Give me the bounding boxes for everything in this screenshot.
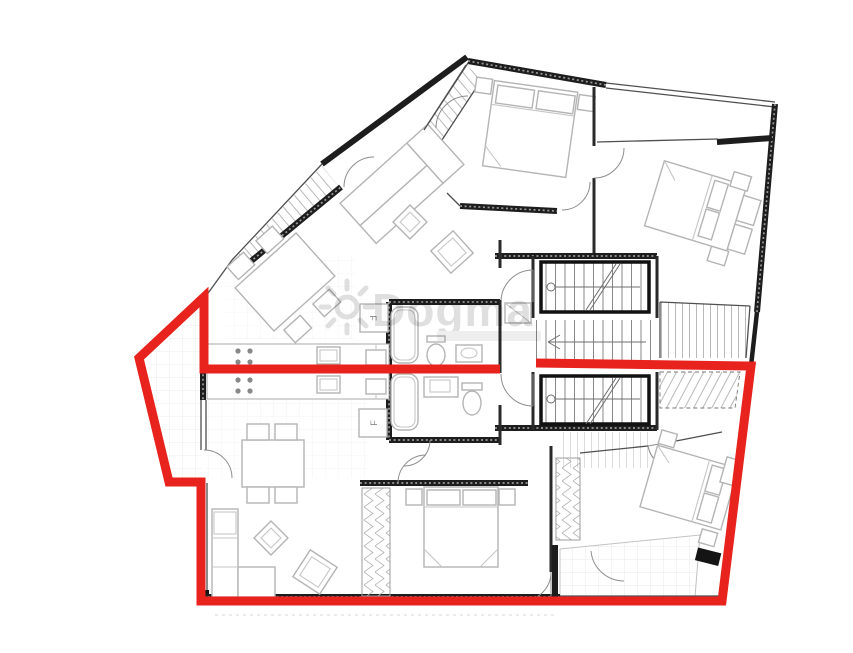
bathroom-lower bbox=[391, 374, 482, 466]
stairwell bbox=[495, 256, 657, 430]
watermark-subtitle-bar bbox=[437, 331, 541, 341]
floor-plan-image: F F bbox=[0, 0, 853, 653]
terrace-upper-right bbox=[660, 302, 750, 358]
fridge-label-lower: F bbox=[369, 420, 379, 426]
bedroom-bottom-center bbox=[360, 446, 555, 601]
floor-plan-svg: F F bbox=[0, 0, 853, 653]
watermark-text: Dogma bbox=[372, 284, 533, 336]
terrace-bottom-right bbox=[560, 535, 721, 597]
